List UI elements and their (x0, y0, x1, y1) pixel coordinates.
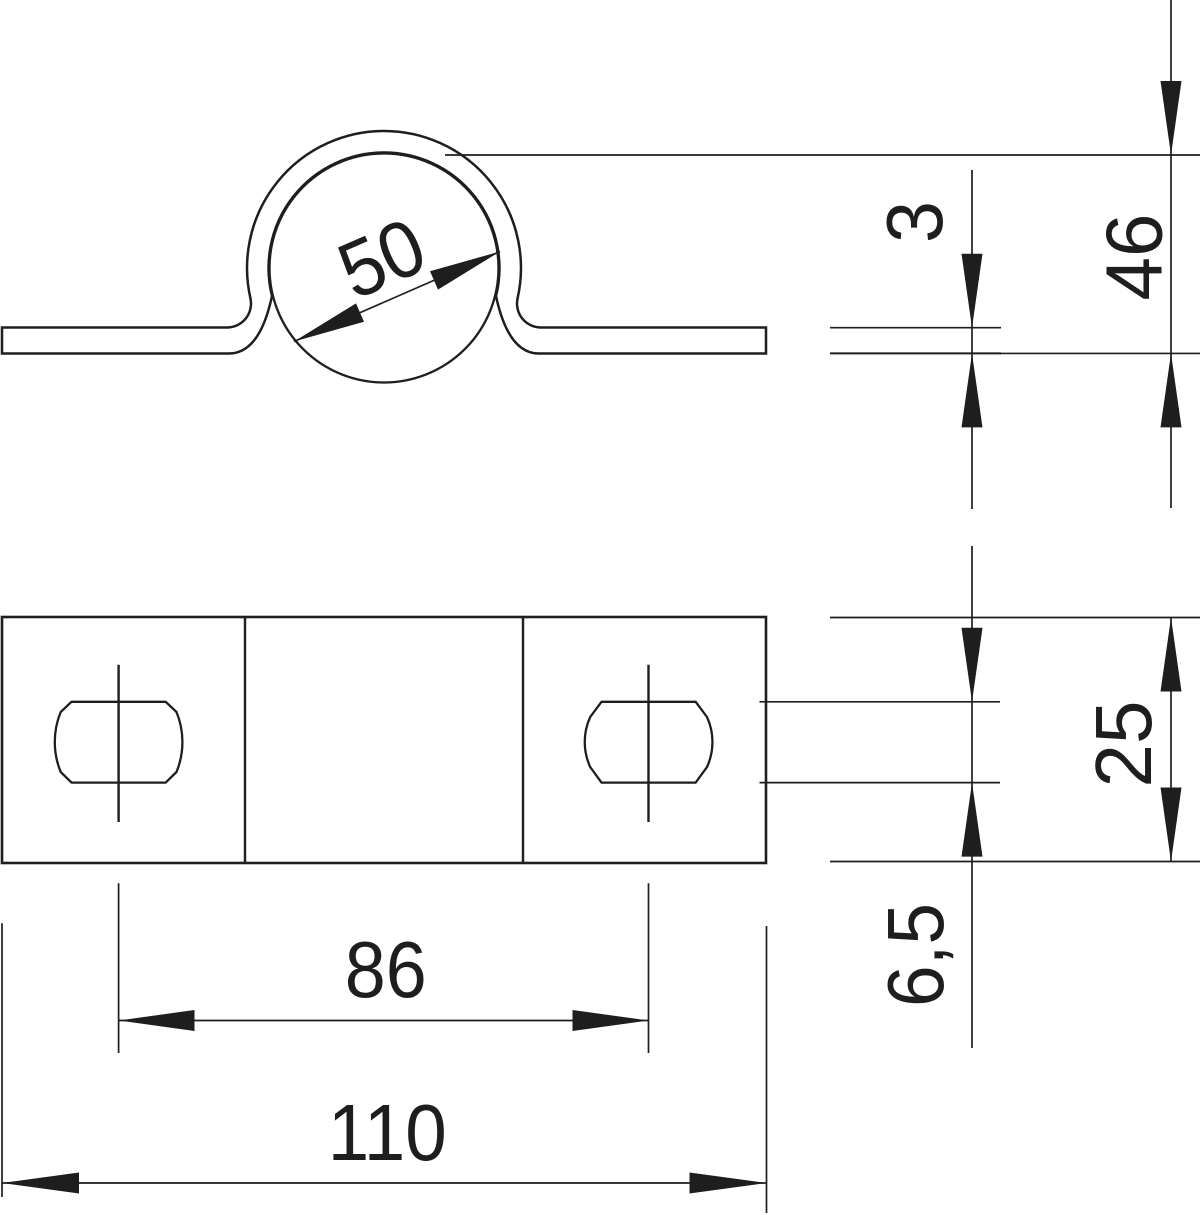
svg-text:46: 46 (1090, 214, 1179, 301)
svg-text:25: 25 (1079, 701, 1168, 788)
svg-text:86: 86 (345, 925, 427, 1014)
svg-text:6,5: 6,5 (871, 903, 960, 1007)
svg-text:3: 3 (870, 201, 959, 243)
svg-text:110: 110 (328, 1088, 447, 1177)
